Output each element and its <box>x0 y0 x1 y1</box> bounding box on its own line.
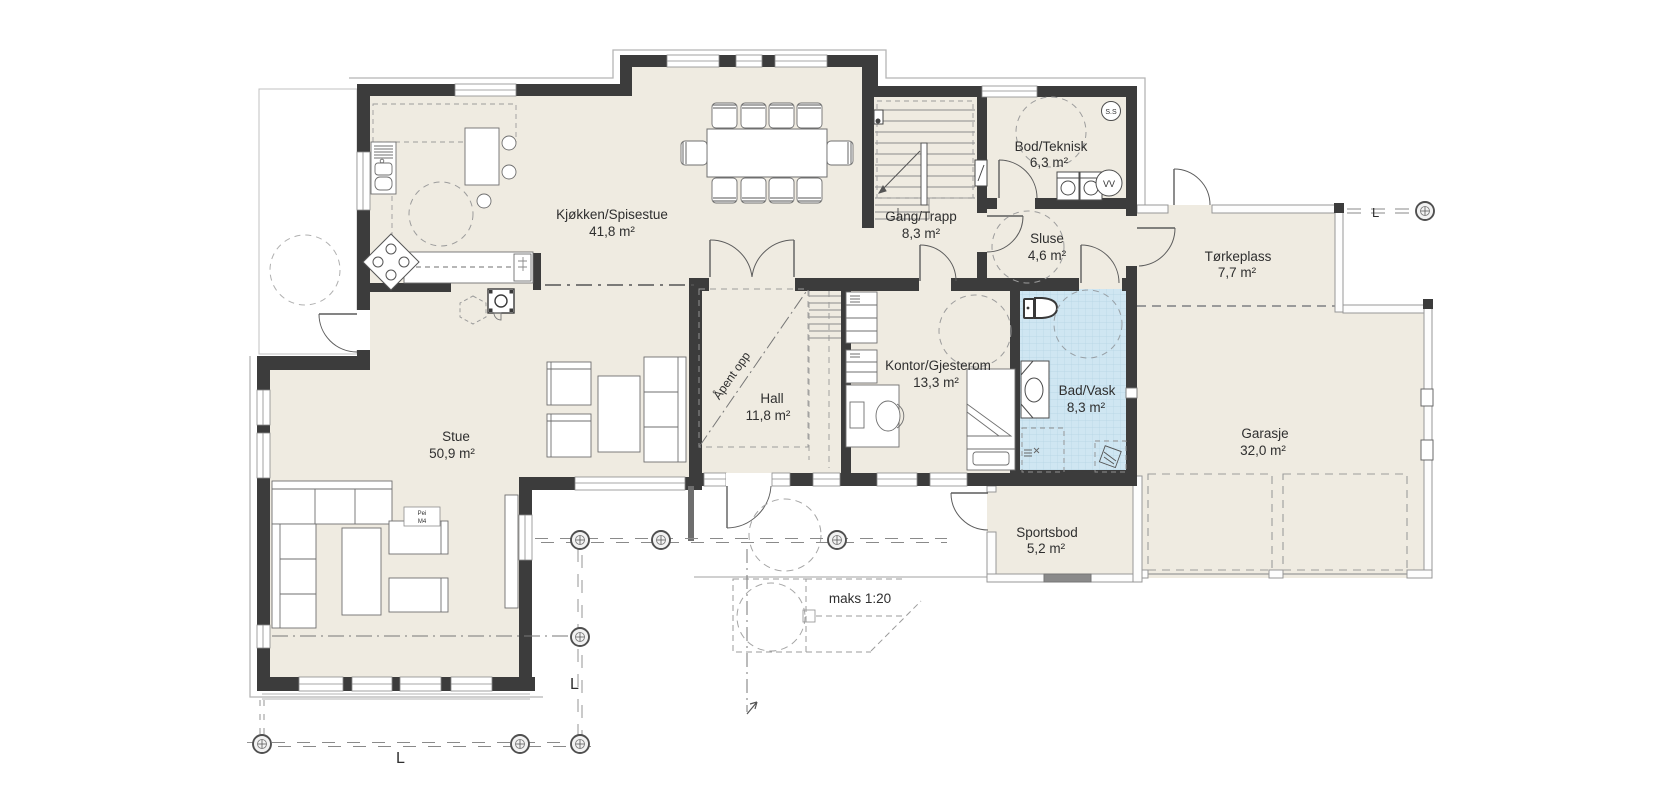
svg-text:Kontor/Gjesterom: Kontor/Gjesterom <box>885 358 991 373</box>
svg-text:4,6 m²: 4,6 m² <box>1028 248 1067 263</box>
svg-text:maks 1:20: maks 1:20 <box>829 591 891 606</box>
svg-text:Pei: Pei <box>418 511 427 517</box>
svg-text:M4: M4 <box>418 519 427 525</box>
svg-text:Tørkeplass: Tørkeplass <box>1205 249 1272 264</box>
svg-text:Kjøkken/Spisestue: Kjøkken/Spisestue <box>556 207 668 222</box>
svg-text:7,7 m²: 7,7 m² <box>1218 265 1257 280</box>
svg-text:13,3 m²: 13,3 m² <box>913 375 959 390</box>
svg-text:5,2 m²: 5,2 m² <box>1027 541 1066 556</box>
svg-text:L: L <box>396 750 405 767</box>
svg-text:50,9 m²: 50,9 m² <box>429 446 475 461</box>
svg-text:L: L <box>570 676 579 693</box>
svg-text:Bad/Vask: Bad/Vask <box>1059 383 1116 398</box>
svg-text:41,8 m²: 41,8 m² <box>589 224 635 239</box>
svg-text:Sluse: Sluse <box>1030 231 1064 246</box>
svg-text:8,3 m²: 8,3 m² <box>1067 400 1106 415</box>
svg-text:11,8 m²: 11,8 m² <box>746 408 791 423</box>
svg-text:S.S: S.S <box>1105 109 1117 116</box>
svg-text:32,0 m²: 32,0 m² <box>1240 443 1286 458</box>
svg-text:Bod/Teknisk: Bod/Teknisk <box>1015 139 1088 154</box>
svg-text:Sportsbod: Sportsbod <box>1016 525 1078 540</box>
svg-text:L: L <box>1372 205 1379 220</box>
svg-text:Stue: Stue <box>442 429 470 444</box>
svg-text:6,3 m²: 6,3 m² <box>1030 155 1069 170</box>
svg-text:Garasje: Garasje <box>1241 426 1288 441</box>
svg-text:8,3 m²: 8,3 m² <box>902 226 941 241</box>
svg-text:Gang/Trapp: Gang/Trapp <box>885 209 957 224</box>
svg-text:Hall: Hall <box>760 391 783 406</box>
svg-text:VV: VV <box>1103 179 1115 189</box>
